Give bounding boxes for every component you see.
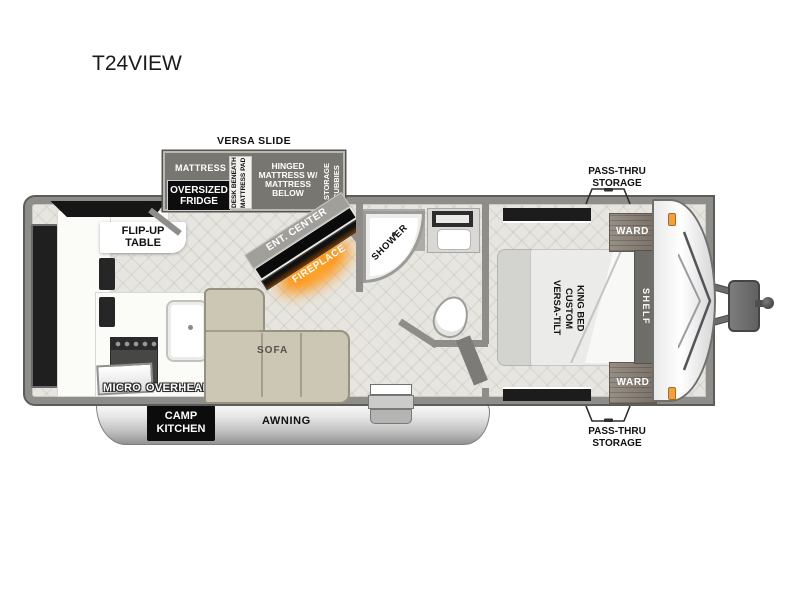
oversized-fridge: OVERSIZED FRIDGE — [167, 180, 231, 211]
vanity-sink — [437, 229, 471, 250]
cap-chevron-icon — [678, 228, 714, 374]
passthru-top-door — [583, 188, 633, 205]
flip-up-table-label: FLIP-UP TABLE — [115, 226, 171, 249]
camp-kitchen-badge: CAMP KITCHEN — [147, 405, 215, 441]
awning-label: AWNING — [262, 416, 311, 428]
bedroom-window-bottom — [503, 389, 591, 401]
ward-top: WARD — [609, 213, 656, 252]
entry-step-top — [370, 384, 412, 395]
dinette-chair-top — [99, 258, 115, 290]
page-title: T24VIEW — [92, 52, 182, 76]
micro-label: MICRO — [103, 383, 141, 395]
overhead-label: OVERHEAD — [146, 383, 211, 395]
marker-light-bottom — [668, 387, 676, 400]
floorplan-diagram: T24VIEW AWNING CAMP KITCHEN FLIP-UP TABL… — [0, 0, 800, 600]
sofa-seat — [204, 330, 350, 404]
hinged-mattress-label: HINGED MATTRESS W/ MATTRESS BELOW — [256, 162, 320, 198]
mattress-label: MATTRESS — [175, 164, 226, 173]
shelf-label: SHELF — [641, 288, 650, 325]
sink-faucet — [188, 325, 193, 330]
shower-drain — [392, 232, 396, 236]
sofa-seam-3 — [207, 330, 259, 332]
kitchen-sink — [166, 300, 208, 362]
entry-step-mid — [368, 395, 414, 409]
bath-wall-left — [356, 204, 363, 292]
bed-label: VERSA-TILT CUSTOM KING BED — [550, 276, 588, 340]
bedroom-wall — [482, 204, 489, 344]
top-window — [48, 201, 166, 217]
vanity-mirror — [432, 211, 473, 227]
hitch-coupler-ball — [762, 297, 774, 309]
passthru-bottom-door — [583, 405, 633, 422]
marker-light-top — [668, 213, 676, 226]
dinette-chair-bottom — [99, 297, 115, 327]
passthru-bottom-label: PASS-THRU STORAGE — [577, 426, 657, 449]
sofa-seam-2 — [300, 333, 302, 397]
passthru-top-label: PASS-THRU STORAGE — [577, 166, 657, 189]
ward-bottom: WARD — [609, 362, 657, 404]
versa-slide-label: VERSA SLIDE — [163, 136, 345, 147]
sofa-label: SOFA — [257, 346, 288, 357]
entry-step-low — [370, 409, 412, 424]
bedroom-wall-stub — [482, 388, 489, 402]
desk-strip: DESK BENEATH MATTRESS PAD — [229, 156, 252, 209]
sofa-seam-1 — [261, 333, 263, 397]
bedroom-window-top — [503, 208, 591, 221]
versa-slide: MATTRESS OVERSIZED FRIDGE DESK BENEATH M… — [163, 151, 345, 211]
